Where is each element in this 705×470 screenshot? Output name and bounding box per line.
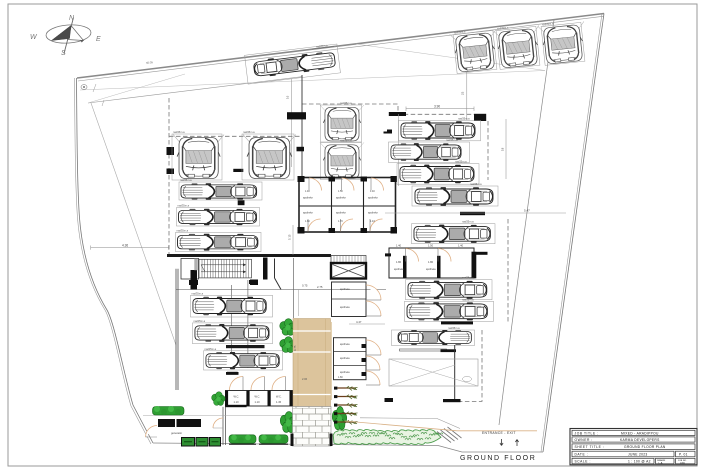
svg-text:1 : 100 @ A2: 1 : 100 @ A2 xyxy=(628,459,651,463)
svg-text:ENTRANCE - EXIT: ENTRANCE - EXIT xyxy=(482,431,516,435)
svg-text:KARMA DEVELOPERS: KARMA DEVELOPERS xyxy=(620,438,660,442)
svg-text:S: S xyxy=(61,50,66,57)
svg-text:P. 01: P. 01 xyxy=(679,452,688,456)
svg-text:5.47: 5.47 xyxy=(524,209,530,213)
svg-text:nad35m.a: nad35m.a xyxy=(177,228,189,232)
svg-text:3.90: 3.90 xyxy=(434,104,440,108)
svg-text:nad35m.a: nad35m.a xyxy=(458,116,470,120)
svg-text:apotheke: apotheke xyxy=(368,197,379,200)
svg-text:nad35m.a: nad35m.a xyxy=(462,297,474,301)
svg-text:1.70: 1.70 xyxy=(338,220,343,223)
svg-text:nad35m.a: nad35m.a xyxy=(448,326,460,330)
svg-text:2.06: 2.06 xyxy=(302,377,308,381)
svg-text:nad35m.a: nad35m.a xyxy=(180,178,192,182)
svg-text:1.43: 1.43 xyxy=(370,220,375,223)
svg-text:9.75: 9.75 xyxy=(293,345,297,351)
svg-text:SHEET TITLE :: SHEET TITLE : xyxy=(575,445,605,449)
svg-text:JOB TITLE :: JOB TITLE : xyxy=(575,431,599,435)
svg-text:nad35m.a: nad35m.a xyxy=(462,276,474,280)
svg-text:4.36: 4.36 xyxy=(122,244,128,248)
svg-text:DATE :: DATE : xyxy=(575,452,589,456)
svg-text:nad35m.a: nad35m.a xyxy=(173,130,185,134)
svg-text:nad35m.a: nad35m.a xyxy=(462,220,474,224)
svg-text:L. A.: L. A. xyxy=(659,461,664,464)
svg-text:5.15: 5.15 xyxy=(288,234,292,240)
svg-text:nad35m.a: nad35m.a xyxy=(455,160,467,164)
svg-text:MIXED - ARADIPPOU: MIXED - ARADIPPOU xyxy=(621,431,659,435)
svg-text:1.40: 1.40 xyxy=(396,244,402,248)
svg-text:1.40: 1.40 xyxy=(305,190,310,193)
svg-text:apotheke: apotheke xyxy=(303,197,314,200)
svg-text:apotheke: apotheke xyxy=(340,306,351,309)
svg-text:16: 16 xyxy=(286,95,290,99)
svg-text:apotheke: apotheke xyxy=(303,212,314,215)
svg-text:apotheke: apotheke xyxy=(426,268,437,271)
svg-text:apotheke: apotheke xyxy=(340,288,351,291)
svg-text:1.80: 1.80 xyxy=(396,260,402,264)
svg-text:18: 18 xyxy=(501,147,505,151)
svg-text:1055: 1055 xyxy=(680,462,686,464)
svg-text:GROUND FLOOR: GROUND FLOOR xyxy=(460,455,536,462)
svg-text:1.45: 1.45 xyxy=(276,400,282,404)
svg-text:apotheke: apotheke xyxy=(340,357,351,360)
svg-text:W.C.: W.C. xyxy=(255,395,261,399)
svg-text:apotheke: apotheke xyxy=(336,197,347,200)
svg-text:GROUND FLOOR PLAN: GROUND FLOOR PLAN xyxy=(624,445,666,449)
svg-text:4.47: 4.47 xyxy=(356,320,362,324)
svg-text:OWNER :: OWNER : xyxy=(575,438,593,442)
svg-text:apotheke: apotheke xyxy=(368,212,379,215)
svg-text:SCALE :: SCALE : xyxy=(575,459,592,463)
svg-text:nad35m.a: nad35m.a xyxy=(470,182,482,186)
svg-text:23: 23 xyxy=(461,91,465,95)
svg-text:1.60: 1.60 xyxy=(305,220,310,223)
svg-text:nad35m.a: nad35m.a xyxy=(192,291,204,295)
svg-text:1.10: 1.10 xyxy=(255,400,261,404)
svg-text:1.10: 1.10 xyxy=(234,400,240,404)
svg-text:apotheke: apotheke xyxy=(394,268,405,271)
svg-text:W.C.: W.C. xyxy=(276,395,282,399)
svg-text:nad35m.a: nad35m.a xyxy=(340,139,352,143)
svg-text:nad35m.a: nad35m.a xyxy=(194,319,206,323)
svg-text:0.75: 0.75 xyxy=(302,284,308,288)
svg-text:1.40: 1.40 xyxy=(458,244,464,248)
svg-text:generator: generator xyxy=(171,431,182,435)
svg-text:1.40: 1.40 xyxy=(370,190,375,193)
svg-text:nad35m.a: nad35m.a xyxy=(340,101,352,105)
svg-text:apotheke: apotheke xyxy=(340,343,351,346)
svg-text:1.50: 1.50 xyxy=(428,244,434,248)
svg-text:W.C.: W.C. xyxy=(234,395,240,399)
svg-text:nad35m.a: nad35m.a xyxy=(178,204,190,208)
svg-text:nad35m.a: nad35m.a xyxy=(243,130,255,134)
svg-text:JUNE 2023: JUNE 2023 xyxy=(628,452,648,456)
svg-text:1.80: 1.80 xyxy=(338,376,343,379)
svg-text:apotheke: apotheke xyxy=(336,212,347,215)
svg-text:nad35m.a: nad35m.a xyxy=(446,138,458,142)
svg-text:1.80: 1.80 xyxy=(428,260,434,264)
svg-text:2.75: 2.75 xyxy=(317,285,323,289)
svg-text:E: E xyxy=(96,36,101,43)
svg-text:1.50: 1.50 xyxy=(338,190,343,193)
svg-text:apotheke: apotheke xyxy=(340,371,351,374)
svg-text:nad35m.a: nad35m.a xyxy=(205,347,217,351)
